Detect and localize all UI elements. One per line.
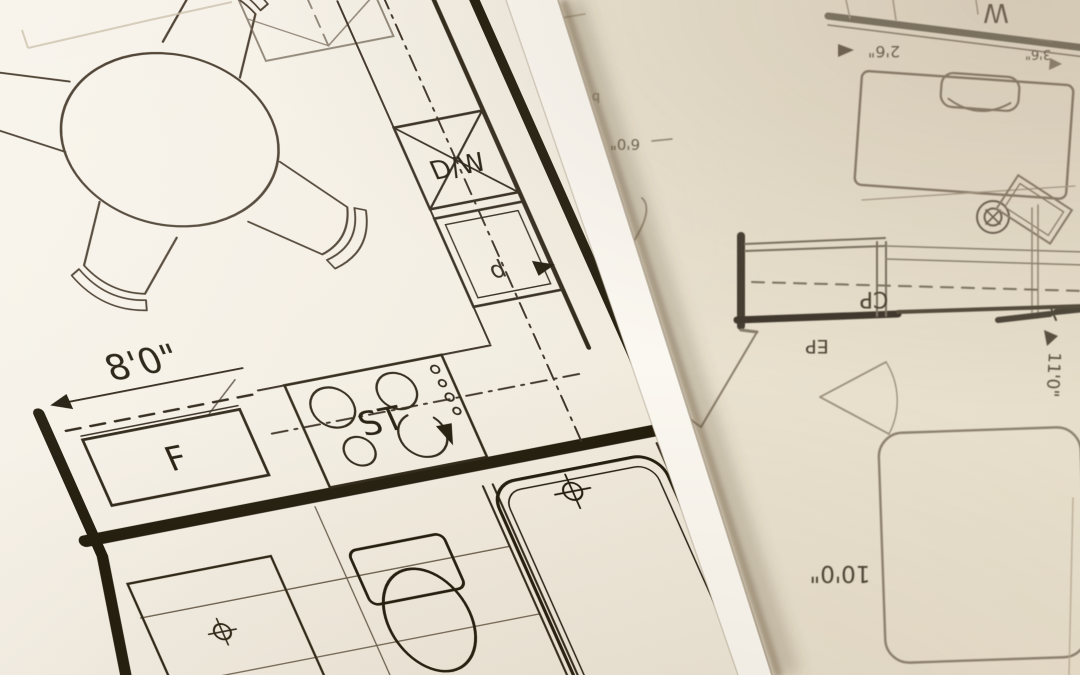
dim-10-0-label: 10'0" (810, 560, 871, 586)
dishwasher: D/W (394, 111, 519, 210)
letter-b-label: b (592, 89, 600, 104)
dim-3-6-label: 3'6" (1025, 46, 1051, 61)
upper-cabinet (218, 0, 394, 61)
closet-label: CP (860, 286, 889, 311)
closet: CP (737, 236, 1080, 326)
rug (878, 427, 1080, 664)
dining-table (30, 36, 309, 244)
bed (854, 67, 1074, 200)
toilet (348, 533, 499, 675)
fridge-label: F (159, 439, 195, 480)
stove-knob (438, 379, 448, 387)
dim-6-0-label: 6'0" (610, 135, 640, 153)
dishwasher-label: D/W (425, 148, 491, 186)
stove-knob (430, 365, 441, 374)
dim-11-0-label: 11'0" (1042, 352, 1064, 398)
fridge: F (70, 380, 277, 506)
bedroom-wall (828, 16, 1080, 48)
panel-label: EP (805, 335, 828, 357)
chair (248, 162, 377, 276)
door-swing (820, 362, 897, 434)
dim-arrow (1044, 330, 1058, 346)
chair (67, 202, 177, 320)
sink-label: d (484, 254, 511, 284)
closet-rod (752, 282, 1080, 291)
bathroom (104, 441, 806, 675)
sink-cabinet: d (434, 201, 566, 307)
blueprint-photo: W 2'6" 3'6" (0, 0, 1080, 675)
dim-arrow (838, 44, 854, 57)
stove-knob (452, 407, 462, 415)
dining-set (0, 0, 401, 338)
vanity (128, 556, 332, 675)
chair (0, 58, 70, 152)
dimension-8ft: 8'0" (31, 325, 256, 432)
light-fixture-symbol (977, 201, 1009, 233)
wall-segment (998, 309, 1080, 320)
dim-2-6-label: 2'6" (868, 42, 900, 61)
floor-mat (996, 175, 1071, 243)
tile-lines (104, 475, 632, 675)
washer-label: W (983, 0, 1009, 27)
